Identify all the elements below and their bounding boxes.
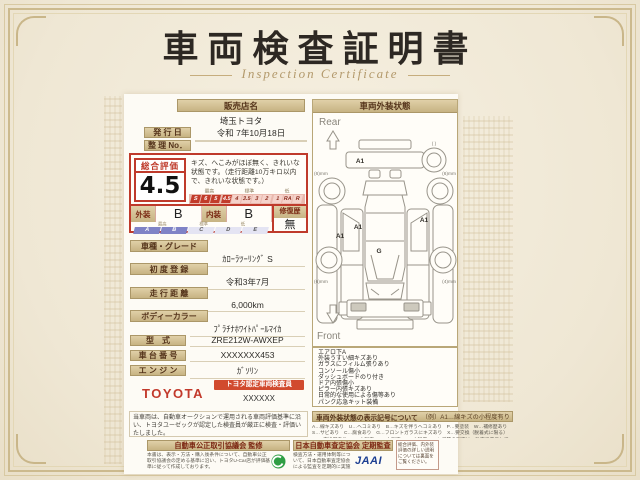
chassis-no-value: XXXXXXX453 [190,350,305,362]
overall-score: 4.5 [136,173,184,200]
grade-cell: A [133,227,161,234]
grade-cell: E [241,227,269,234]
scale-cell: 2 [261,195,272,203]
score-scale-cells: S 6 5 4.5 4 3.5 3 2 1 RA R [189,194,305,204]
mark-right-door: A1 [420,217,429,224]
jaai-logo: JAAI [355,455,382,467]
interior-label: 内装 [202,206,227,222]
scale-legend-low: 低 [285,189,290,194]
fair-trade-logo [271,454,286,469]
corner-ornament [594,434,624,464]
tread-front-left: (6)mm [314,279,328,285]
back-side-note-text: 総合評価、内外装評価の詳しい説明については裏面をご覧ください。 [398,442,438,465]
condition-note: パンク応急キット装備 [318,400,452,406]
grade-cell: D [214,227,242,234]
first-registration-label: 初 度 登 録 [130,263,208,275]
grade-cell-selected: B [160,227,188,234]
jaai-body-text: 検査方法・運用体制等について、日本自動車査定協会による監査を定期的に実施していま… [293,452,353,470]
overall-evaluation-box: 総合評価 4.5 キズ、へこみがほぼ無く、きれいな状態です。（走行距離10万キロ… [129,153,308,233]
scale-cell: 1 [272,195,283,203]
interior-grade: B [227,206,273,222]
car-diagram: Rear Front A1 A1 A1 A1 G ( ) (6)mm (6)mm… [313,113,457,347]
page-title: 車両検査証明書 [0,20,640,72]
fair-trade-block: 自動車公正取引協議会 監修 本書は、表示・方法・購入後条件について、自動車公正取… [147,440,290,470]
model-code-value: ZRE212W-AWXEP [190,335,305,347]
symbol-legend-text: A…線キズあり U…ヘコミあり B…キズを伴うヘコミあり P…要塗装 W…補修歴… [312,424,513,438]
symbol-legend-bar: 車両外装状態の表示記号について （例）A1…線キズの小程度有り [312,411,513,422]
grade-scale: 最高 標準 低 A B C D E [131,222,272,234]
symbol-legend-example: （例）A1…線キズの小程度有り [422,412,510,421]
rear-direction-label: Rear [319,117,341,128]
ref-no-value [195,140,307,142]
scale-legend-high: 最高 [205,189,215,194]
tread-front-right: (4)mm [442,279,456,285]
ref-no-label: 整 理 No． [144,140,191,151]
mark-left-door: A1 [354,224,363,231]
symbol-legend-body: A…線キズあり U…ヘコミあり B…キズを伴うヘコミあり P…要塗装 W…補修歴… [312,424,513,438]
chassis-no-label: 車 台 番 号 [130,350,186,361]
repair-history-value: 無 [274,218,306,232]
score-scale: 最高 標準 低 S 6 5 4.5 4 3.5 3 2 1 RA R [189,188,305,204]
scale-cell: 5 [210,195,221,203]
fair-trade-body: 本書は、表示・方法・購入後条件について、自動車公正取引協議会の定める基準に沿い、… [147,452,271,470]
mark-rear-bumper: A1 [356,158,365,165]
jaai-title: 日本自動車査定協会 定期監査 [293,440,393,451]
back-side-note: 総合評価、内外装評価の詳しい説明については裏面をご覧ください。 [396,440,439,470]
toyota-logo: TOYOTA [142,386,204,401]
mark-left-quarter: A1 [336,233,345,240]
body-color-label: ボディーカラー [130,310,208,322]
dealer-header: 販売店名 [177,99,305,112]
model-code-label: 型 式 [130,335,186,346]
certified-inspector-badge: トヨタ認定車両検査員 [214,380,304,390]
engine-label: エ ン ジ ン [130,365,186,376]
exterior-condition-panel: 車両外装状態 [312,99,458,347]
fair-trade-title: 自動車公正取引協議会 監修 [147,440,290,451]
inspector-number: XXXXXX [214,394,304,403]
exterior-grade: B [156,206,202,222]
front-direction-label: Front [317,331,341,342]
jaai-body: 検査方法・運用体制等について、日本自動車査定協会による監査を定期的に実施していま… [293,452,353,470]
overall-score-box: 総合評価 4.5 [134,158,186,202]
issue-date-label: 発 行 日 [144,127,191,138]
subtitle-flourish [190,75,232,76]
exterior-condition-header: 車両外装状態 [313,100,457,113]
grade-row: 外装 B 内装 B 最高 標準 低 A B C D [131,204,306,231]
lace-ornament-right [463,116,513,402]
condition-notes-list: エアロ下A 外装うすい細キズあり ガラスにフィルム張りあり コンソール傷小 ダッ… [312,347,458,407]
inspection-certificate: 車両検査証明書 Inspection Certificate 販売店名 埼玉トヨ… [0,0,640,480]
jaai-block: 日本自動車査定協会 定期監査 検査方法・運用体制等について、日本自動車査定協会に… [293,440,393,470]
grade-cell: C [187,227,215,234]
model-grade-label: 車種・グレード [130,240,208,252]
tread-rear-right: (6)mm [442,171,456,177]
mark-roof: G [376,248,381,255]
exterior-label: 外装 [131,206,156,222]
repair-history-label: 修復歴 [274,206,306,218]
symbol-legend-title: 車両外装状態の表示記号について [316,412,418,422]
fair-trade-body-text: 本書は、表示・方法・購入後条件について、自動車公正取引協議会の定める基準に沿い、… [147,452,271,470]
disclaimer-text: 当車両は、自動車オークションで運用される車両評価基準に沿い、トヨタユーゼックが認… [129,411,308,437]
page-subtitle-text: Inspection Certificate [241,66,398,81]
lace-ornament-left [104,96,122,464]
tread-rear-left: (6)mm [314,171,328,177]
spare-tire-mark: ( ) [432,141,437,147]
page-subtitle: Inspection Certificate [0,66,640,82]
overall-evaluation-label: 総合評価 [136,160,184,173]
engine-value: ｶﾞｿﾘﾝ [190,365,305,379]
scale-legend-mid: 標準 [245,189,255,194]
subtitle-flourish [408,75,450,76]
issue-date-value: 令和 7年10月18日 [195,127,307,141]
mileage-label: 走 行 距 離 [130,287,208,299]
evaluation-comment: キズ、へこみがほぼ無く、きれいな状態です。（走行距離10万キロ以内で、きれいな状… [191,159,304,187]
scale-cell: R [292,195,303,203]
corner-ornament [16,434,46,464]
score-scale-legend: 最高 標準 低 [201,189,294,194]
